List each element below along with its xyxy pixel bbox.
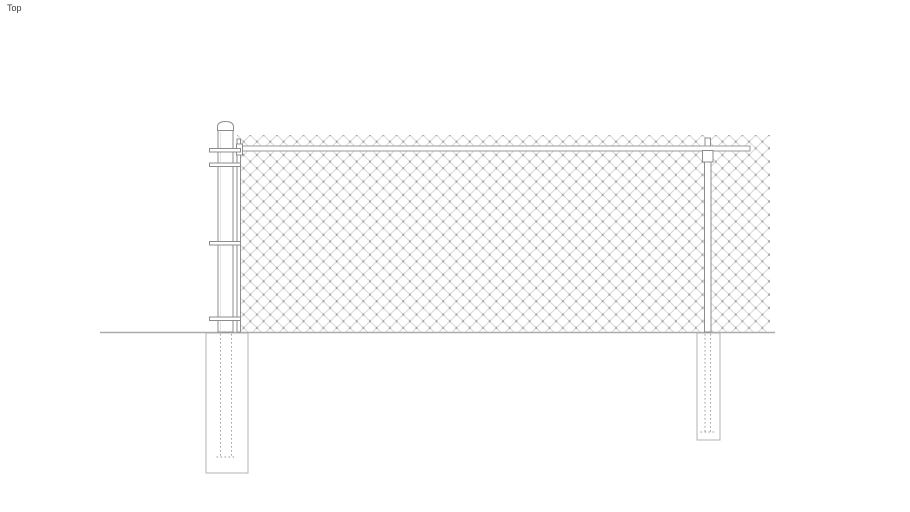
right-footing-outline <box>697 333 720 440</box>
right-post-loop-cap-collar <box>703 151 714 163</box>
brace-band-top-2 <box>210 163 241 167</box>
fence-elevation-drawing <box>100 122 775 474</box>
brace-band-bottom <box>210 317 241 321</box>
left-post-dome-cap <box>218 122 234 131</box>
left-footing-outline <box>206 333 248 473</box>
model-viewport-canvas[interactable] <box>0 0 910 512</box>
right-post-footing <box>697 333 720 440</box>
left-post-footing <box>206 333 248 473</box>
left-terminal-post <box>210 122 243 333</box>
chain-link-mesh <box>237 135 770 332</box>
brace-band-middle <box>210 242 241 246</box>
top-rail <box>239 146 750 151</box>
right-line-post <box>703 151 714 333</box>
right-post-body <box>705 151 712 332</box>
tension-bar <box>237 139 241 332</box>
brace-band-top-1 <box>210 149 241 153</box>
